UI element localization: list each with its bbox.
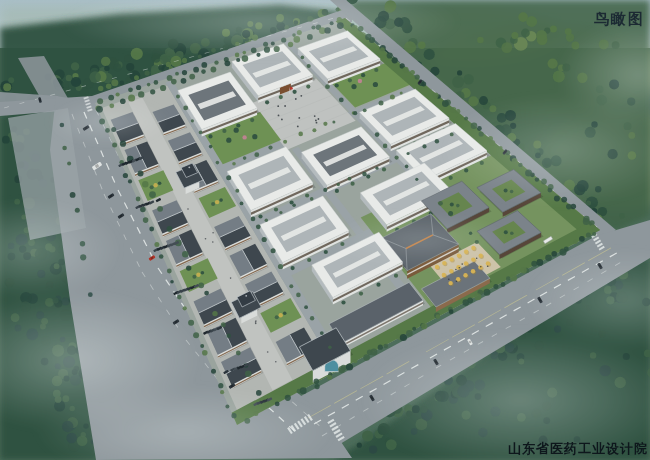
institute-caption-label: 山东省医药工业设计院 <box>508 440 648 458</box>
aerial-rendering: 鸟瞰图 山东省医药工业设计院 <box>0 0 650 460</box>
rendering-canvas <box>0 0 650 460</box>
view-title-label: 鸟瞰图 <box>594 10 645 29</box>
